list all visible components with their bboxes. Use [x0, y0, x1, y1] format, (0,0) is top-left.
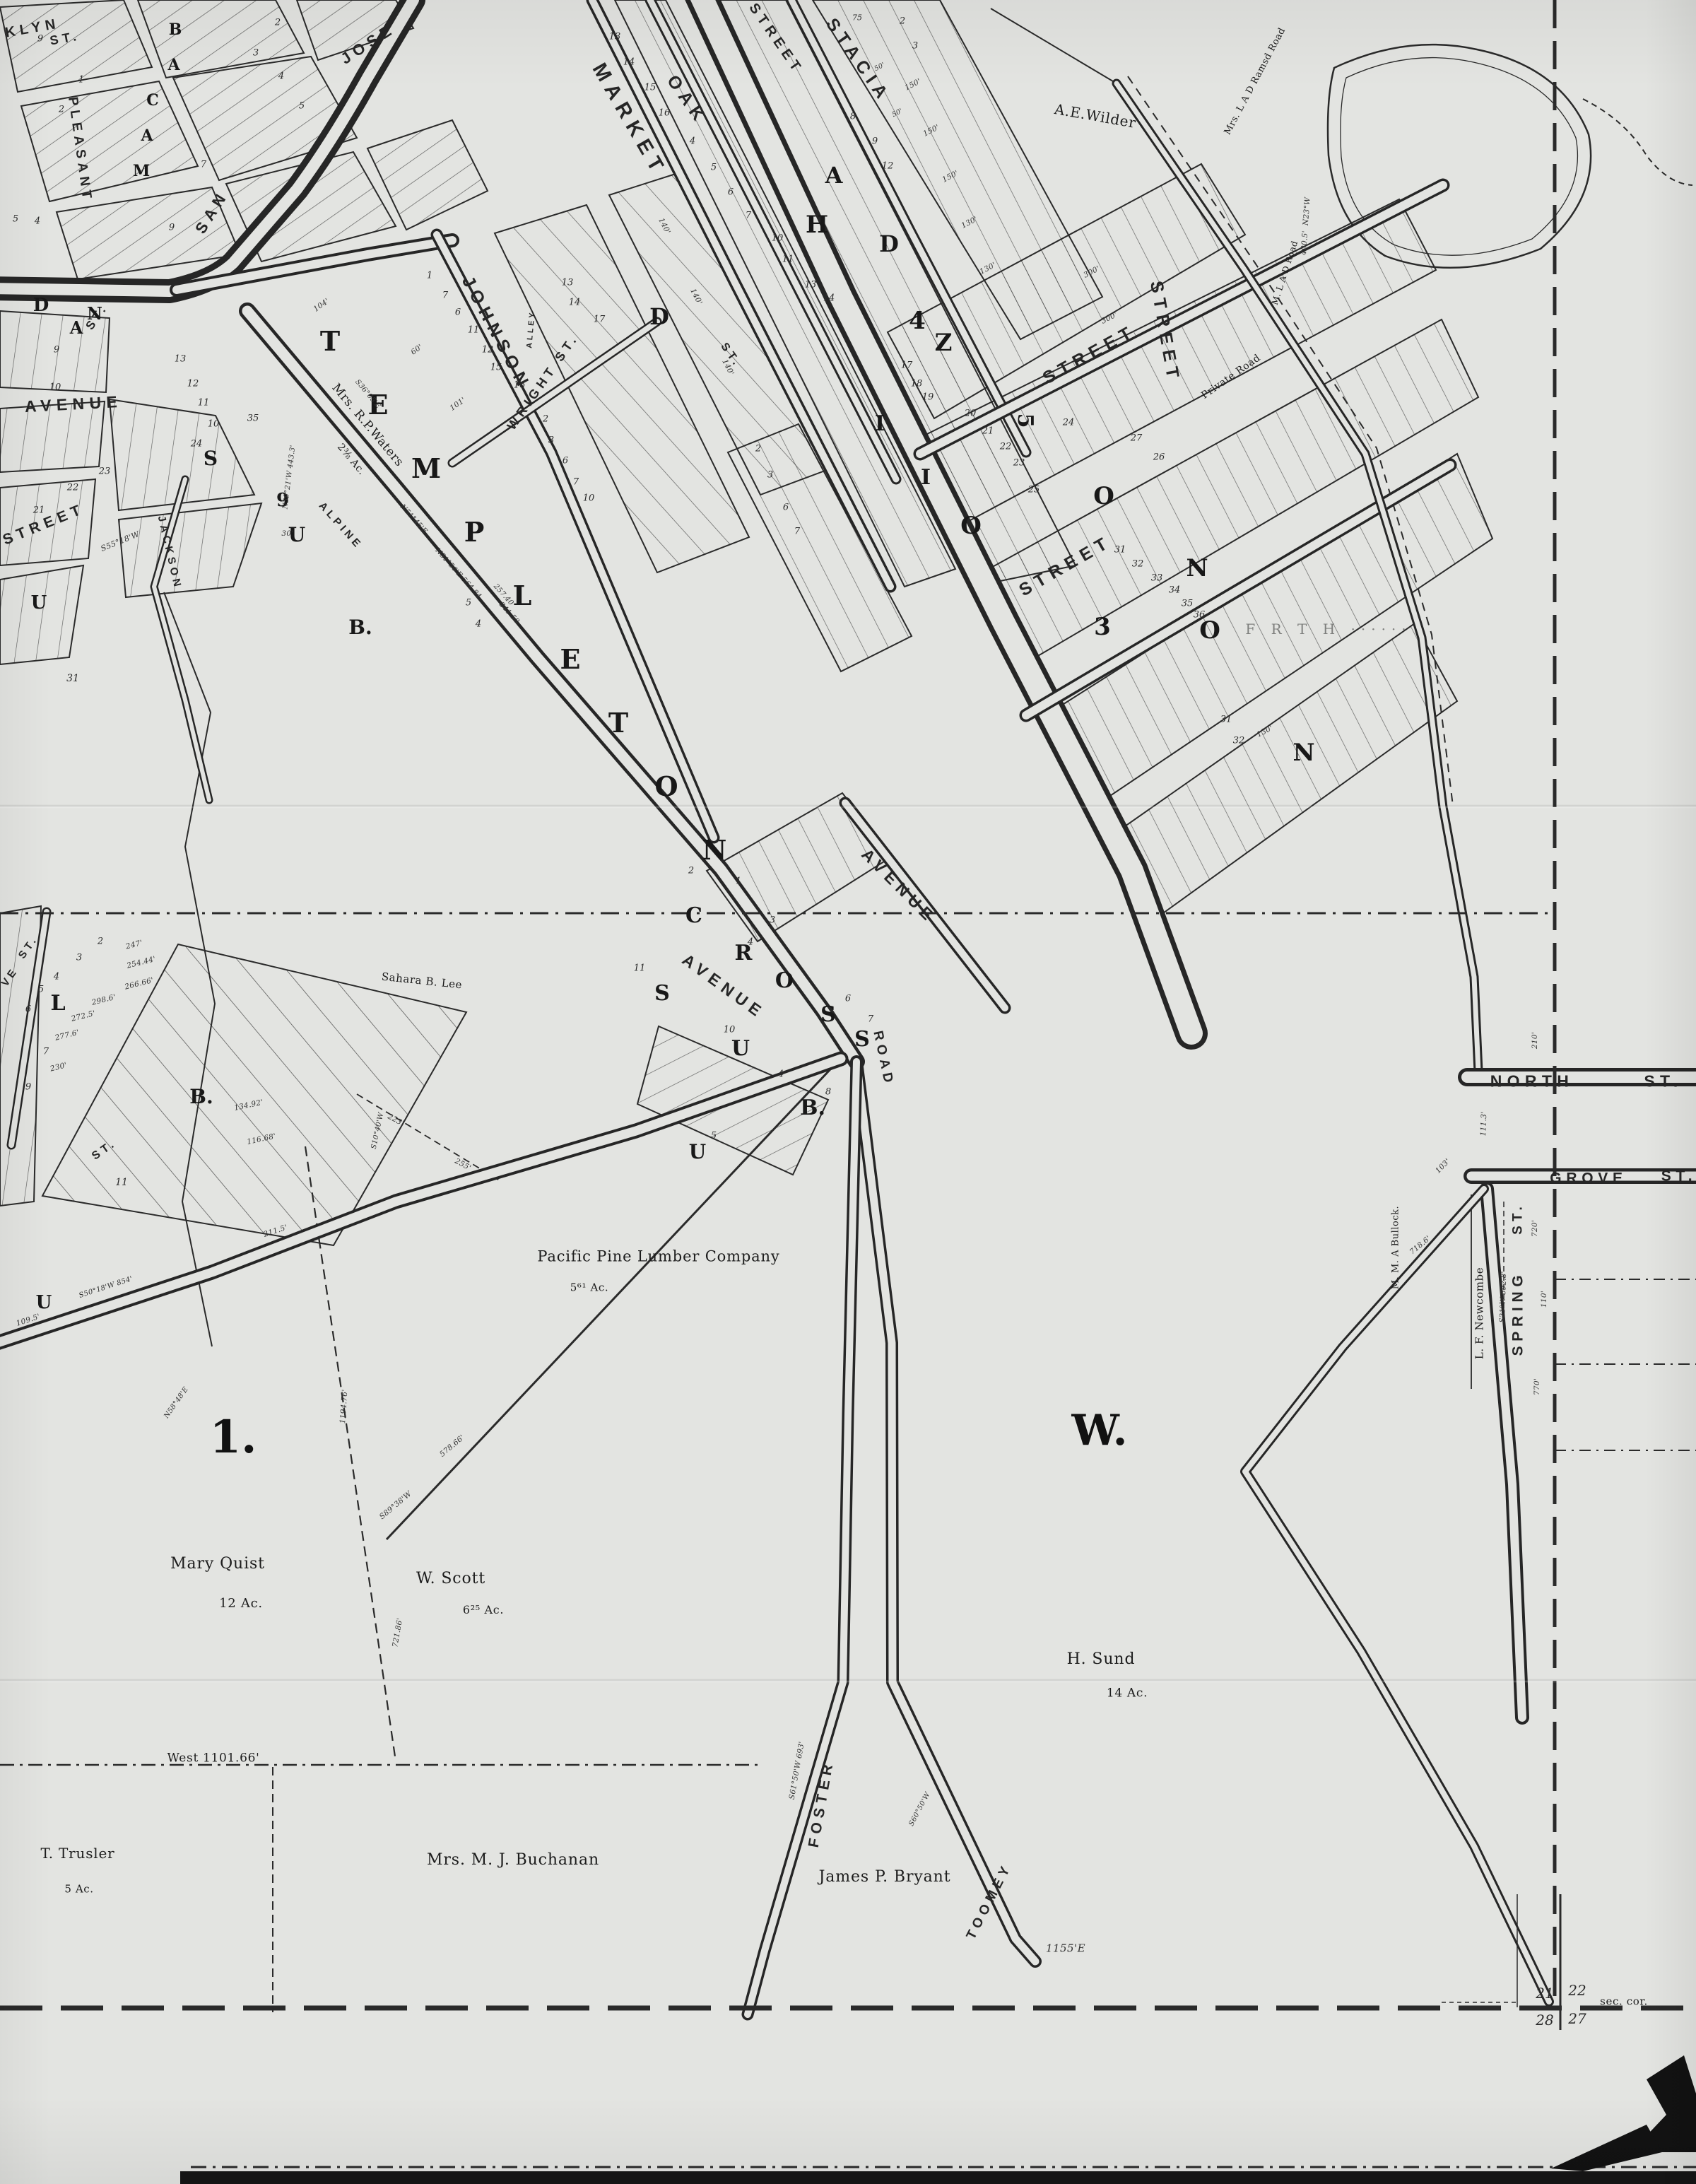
dim: 277.6': [54, 1029, 80, 1043]
bearing: S21°W 392.8': [1500, 1271, 1509, 1322]
dim: 50': [891, 107, 904, 119]
dim: 721.86': [391, 1617, 404, 1648]
lot-number: 9: [25, 1083, 31, 1092]
street-grove-st: ST.: [1661, 1169, 1696, 1184]
lot-number: 25: [1028, 486, 1040, 495]
dim: 718.6': [1408, 1235, 1432, 1256]
street-st-l2: ST.: [90, 1137, 119, 1162]
owner-fruth: F R T H ······: [1245, 622, 1411, 636]
lot-number: 6: [783, 503, 789, 512]
dim: 298.6': [91, 994, 117, 1007]
lot-number: 14: [623, 58, 635, 67]
lot-number: 32: [1132, 560, 1144, 569]
owner-newcombe: L. F. Newcombe: [1475, 1267, 1485, 1359]
big-letter: U: [731, 1038, 750, 1059]
sec-num-22: 22: [1568, 1983, 1586, 1997]
lot-number: 6: [25, 1005, 31, 1014]
street-street-vertical: STREET: [1147, 280, 1182, 385]
dim: 300': [1083, 265, 1101, 279]
big-letter: O: [960, 514, 982, 538]
lot-number: 34: [1169, 586, 1181, 595]
big-letter: L: [50, 993, 65, 1014]
dim-west-line: West 1101.66': [167, 1753, 260, 1765]
lot-number: 7: [794, 527, 800, 536]
lot-number: 4: [278, 72, 284, 81]
lot-number: 24: [191, 440, 203, 449]
big-letter: U: [31, 594, 47, 612]
bearing: S60°50'W: [908, 1791, 932, 1827]
lot-number: 8: [825, 1088, 831, 1097]
big-letter: C: [146, 93, 159, 108]
lot-number: 4: [690, 137, 695, 146]
lot-number: 10: [583, 494, 595, 503]
big-letter: T: [320, 328, 340, 355]
lot-number: 16: [514, 381, 526, 390]
sec-num-21: 21: [1536, 1986, 1553, 2000]
lot-number: 1: [78, 76, 84, 85]
dim: 116.68': [246, 1133, 276, 1146]
dim: 230': [49, 1062, 68, 1073]
dim: 130': [960, 216, 979, 230]
lot-number: 3: [76, 953, 82, 963]
owner-scott: W. Scott: [416, 1571, 485, 1587]
lot-number: 11: [634, 964, 646, 973]
lot-number: 5: [711, 1132, 717, 1141]
street-north: NORTH: [1490, 1074, 1574, 1090]
lot-number: 31: [1220, 715, 1232, 724]
lot-number: 8: [850, 112, 856, 122]
big-letter: M: [133, 163, 150, 179]
district-number-1: 1.: [210, 1415, 257, 1460]
dim: 130': [979, 262, 997, 276]
bearing: N39°21'W 443.3': [282, 445, 297, 510]
lot-number: 6: [728, 188, 734, 197]
street-jackson: JACKSON: [156, 515, 184, 591]
lot-number: 32: [1233, 736, 1245, 746]
bearing: S50°18'W 854': [78, 1276, 134, 1300]
big-letter: 4: [909, 309, 926, 333]
street-grove: GROVE: [1550, 1171, 1627, 1186]
lot-number: 1: [736, 877, 741, 886]
big-letter: A: [70, 319, 83, 336]
dim: 140': [657, 217, 671, 235]
dim: 272.5': [71, 1010, 96, 1023]
lot-number: 33: [1151, 574, 1163, 583]
lot-number: 4: [476, 620, 481, 629]
lot-number: 31: [1114, 546, 1126, 555]
dim: 109.5': [16, 1313, 41, 1328]
big-letter: N: [1186, 556, 1208, 580]
lot-number: 11: [782, 255, 794, 264]
street-north-st: ST.: [1644, 1074, 1683, 1090]
owner-trusler: T. Trusler: [41, 1846, 115, 1860]
bearing: S10°40'W: [371, 1112, 386, 1150]
big-letter: S: [654, 983, 670, 1004]
owner-scott-ac: 6²⁵ Ac.: [463, 1604, 504, 1616]
dim: 223': [387, 1113, 405, 1128]
road-lad: M. L A D Road: [1271, 240, 1300, 306]
lot-number: 1: [427, 271, 432, 281]
lot-number: 18: [911, 380, 923, 389]
dim: 150': [941, 170, 960, 184]
lot-number: 19: [922, 393, 934, 402]
lot-number: 6: [563, 457, 568, 466]
big-letter: N: [87, 305, 102, 322]
street-street-a: STREET: [1040, 322, 1139, 388]
big-letter: M: [411, 455, 441, 482]
lot-number: 35: [1182, 599, 1194, 609]
dim: 578.66': [439, 1434, 466, 1459]
bearing: N31°50'E 564.84: [434, 547, 483, 600]
dim: 50': [873, 61, 886, 73]
owner-pacific-pine-ac: 5⁶¹ Ac.: [570, 1283, 609, 1293]
big-letter: O: [1199, 618, 1220, 642]
dim: 111.3': [1480, 1111, 1488, 1136]
lot-number: 2: [543, 415, 548, 424]
big-letter: E: [560, 646, 581, 673]
map-labels: KLYNST.PLEASANTSANJOSEAVENUESTREETS55°18…: [0, 0, 1696, 2184]
lot-number: 7: [746, 211, 751, 221]
street-oak: OAK: [664, 72, 710, 129]
street-toomey: TOOMEY: [965, 1861, 1015, 1942]
district-letter-w: W.: [1072, 1409, 1128, 1452]
big-letter: I: [875, 413, 885, 435]
bearing: S89°38'W: [378, 1490, 413, 1521]
lot-number: 2: [275, 18, 281, 28]
lot-number: 4: [778, 1070, 784, 1079]
big-letter: U: [689, 1142, 706, 1162]
street-avenue-left: AVENUE: [24, 394, 122, 415]
street-avenue-1: AVENUE: [859, 846, 939, 927]
lot-number: 9: [169, 223, 175, 233]
bearing: N51°45'E: [399, 503, 428, 535]
lot-number: 4: [54, 973, 59, 982]
big-letter: L: [513, 582, 532, 609]
dim: 150': [904, 78, 922, 92]
lot-number: 12: [482, 346, 494, 355]
dim: 1155'E: [1046, 1944, 1085, 1954]
big-letter: B: [169, 22, 182, 37]
big-letter: N: [702, 837, 727, 864]
dim: 101': [449, 397, 467, 412]
dim: 140': [689, 288, 703, 306]
lot-number: 21: [982, 427, 994, 436]
owner-trusler-ac: 5 Ac.: [64, 1884, 93, 1895]
big-letter: A: [167, 57, 179, 73]
street-street-b: STREET: [1016, 533, 1114, 600]
lot-number: 20: [965, 409, 977, 418]
bearing: N58°48'E: [163, 1386, 190, 1420]
lot-number: 11: [468, 326, 480, 335]
owner-sund-ac: 14 Ac.: [1107, 1688, 1148, 1700]
lot-number: 35: [247, 414, 259, 423]
big-letter: B.: [189, 1087, 213, 1107]
plat-map-page: KLYNST.PLEASANTSANJOSEAVENUESTREETS55°18…: [0, 0, 1696, 2184]
lot-number: 10: [724, 1026, 736, 1035]
lot-number: 26: [1153, 453, 1165, 462]
street-spring-st: ST.: [1512, 1202, 1525, 1235]
lot-number: 2: [900, 17, 905, 26]
street-street-oak: STREET: [746, 1, 806, 77]
bearing: 490.5' N23°W: [1300, 197, 1312, 256]
owner-pacific-pine: Pacific Pine Lumber Company: [537, 1250, 779, 1264]
dim: 1194.76': [339, 1389, 349, 1423]
lot-number: 10: [208, 420, 220, 429]
dim: 30': [281, 530, 293, 538]
lot-number: 17: [594, 315, 606, 324]
sec-cor-note: sec. cor.: [1600, 1997, 1648, 2007]
owner-bryant: James P. Bryant: [819, 1869, 951, 1885]
dim: 211.5': [263, 1224, 288, 1239]
dim: 210': [1531, 1032, 1539, 1049]
lot-number: 27: [1131, 434, 1143, 443]
big-letter: O: [1093, 484, 1114, 508]
owner-sund: H. Sund: [1067, 1652, 1136, 1667]
dim: 134.92': [233, 1099, 264, 1112]
lot-number: 11: [115, 1178, 128, 1187]
sec-num-28: 28: [1536, 2013, 1553, 2027]
big-letter: B.: [800, 1098, 825, 1119]
dim: 300': [1100, 311, 1119, 325]
dim: 770': [1533, 1378, 1541, 1395]
big-letter: D: [649, 305, 669, 328]
lot-number: 15: [490, 363, 502, 372]
dim: 104': [312, 298, 331, 313]
owner-quist-ac: 12 Ac.: [219, 1597, 263, 1610]
big-letter: B.: [348, 618, 372, 638]
lot-number: 17: [901, 361, 913, 370]
paper-crease: [0, 1679, 1696, 1683]
lot-number: 24: [1063, 418, 1075, 428]
lot-number: 5: [466, 599, 471, 608]
lot-number: 14: [569, 298, 581, 307]
lot-number: 10: [772, 234, 784, 243]
lot-number: 10: [49, 383, 61, 392]
lot-number: 2: [688, 867, 694, 876]
street-alpine: ALPINE: [317, 500, 364, 551]
lot-number: 4: [35, 217, 40, 226]
lot-number: 6: [455, 308, 461, 317]
lot-number: 23: [1013, 459, 1025, 468]
lot-number: 13: [175, 355, 187, 364]
dim: 103': [1435, 1158, 1452, 1175]
dim: 150': [922, 124, 941, 138]
street-road: ROAD: [871, 1030, 895, 1088]
street-jose: JOSE: [338, 20, 399, 67]
lot-number: 31: [66, 674, 79, 683]
owner-waters-ac: 2⅜ Ac.: [336, 442, 367, 476]
owner-bullock: M. M. A Bullock.: [1391, 1206, 1401, 1289]
lot-number: 5: [13, 215, 18, 224]
big-letter: A: [141, 128, 153, 143]
dim: 254.44': [126, 956, 156, 970]
lot-number: 21: [33, 506, 45, 515]
dim: 247': [125, 939, 143, 951]
lot-number: 16: [659, 109, 671, 118]
lot-number: 6: [845, 994, 851, 1004]
owner-lee: Sahara B. Lee: [381, 972, 463, 991]
lot-number: 7: [442, 291, 448, 300]
lot-number: 13: [805, 281, 817, 290]
big-letter: S: [204, 449, 218, 469]
big-letter: S: [820, 1004, 836, 1026]
lot-number: 13: [562, 278, 574, 288]
street-avenue-2: AVENUE: [679, 951, 767, 1022]
lot-number: 75: [852, 14, 862, 22]
street-alley: ALLEY: [526, 310, 537, 348]
dim: 110': [1541, 1291, 1548, 1308]
lot-number: 7: [573, 478, 579, 487]
lot-number: 12: [882, 162, 894, 171]
street-san: SAN: [193, 188, 231, 237]
street-market: MARKET: [589, 60, 670, 180]
lot-number: 9: [54, 346, 59, 355]
big-letter: O: [775, 970, 794, 992]
big-letter: P: [464, 519, 485, 546]
lot-number: 22: [1000, 442, 1012, 452]
road-private: Private Road: [1200, 353, 1262, 401]
dim: 266.66': [124, 977, 154, 991]
lot-number: 2: [755, 445, 761, 454]
big-letter: S: [854, 1029, 870, 1050]
big-letter: 5: [1014, 413, 1035, 428]
lot-number: 3: [767, 471, 773, 480]
big-letter: A: [825, 164, 843, 187]
lot-number: 14: [823, 294, 835, 303]
dim: 130': [1256, 724, 1274, 739]
lot-number: 13: [609, 33, 621, 42]
lot-number: 3: [770, 916, 775, 925]
bearing: S55°18'W: [100, 530, 141, 553]
big-letter: T: [608, 710, 628, 736]
big-letter: H: [806, 213, 828, 237]
dim: 60': [410, 344, 424, 356]
big-letter: N: [1292, 741, 1314, 765]
big-letter: I: [921, 467, 931, 488]
lot-number: 23: [99, 467, 111, 476]
lot-number: 9: [872, 137, 878, 146]
street-foster: FOSTER: [806, 1759, 836, 1848]
lot-number: 22: [67, 483, 79, 493]
lot-number: 2: [59, 105, 64, 115]
street-ve: VE: [0, 965, 20, 989]
dim: 720': [1531, 1220, 1539, 1237]
street-spring: SPRING: [1511, 1271, 1526, 1356]
lot-number: 5: [38, 985, 44, 994]
lot-number: 11: [198, 399, 210, 408]
lot-number: 2: [98, 937, 103, 946]
dim: 255': [454, 1158, 472, 1173]
big-letter: C: [685, 905, 702, 927]
lot-number: 3: [548, 436, 554, 445]
street-st-l1: ST.: [17, 934, 40, 961]
bearing: S61°50'W 693': [789, 1741, 806, 1800]
lot-number: 12: [187, 380, 199, 389]
lot-number: 9: [37, 35, 43, 44]
lot-number: 36: [1194, 611, 1206, 620]
lot-number: 7: [201, 160, 206, 170]
road-ramsdell: Mrs. L A D Ramsd Road: [1223, 26, 1288, 136]
owner-buchanan: Mrs. M. J. Buchanan: [427, 1853, 599, 1868]
big-letter: D: [879, 233, 899, 255]
lot-number: 3: [253, 49, 259, 58]
street-pleasant: PLEASANT: [66, 96, 94, 204]
big-letter: O: [654, 773, 678, 800]
big-letter: D: [33, 296, 49, 315]
lot-number: 5: [299, 102, 305, 111]
lot-number: 5: [711, 163, 717, 172]
lot-number: 15: [644, 83, 656, 93]
paper-crease: [0, 804, 1696, 809]
owner-wilder: A.E.Wilder: [1054, 102, 1138, 130]
big-letter: U: [36, 1293, 52, 1312]
owner-quist: Mary Quist: [170, 1556, 265, 1572]
lot-number: 3: [912, 42, 918, 51]
lot-number: 7: [868, 1015, 873, 1024]
big-letter: Z: [935, 331, 953, 355]
lot-number: 7: [43, 1047, 49, 1057]
sec-num-27: 27: [1568, 2012, 1586, 2026]
big-letter: 3: [1094, 615, 1111, 639]
lot-number: 4: [748, 938, 753, 947]
